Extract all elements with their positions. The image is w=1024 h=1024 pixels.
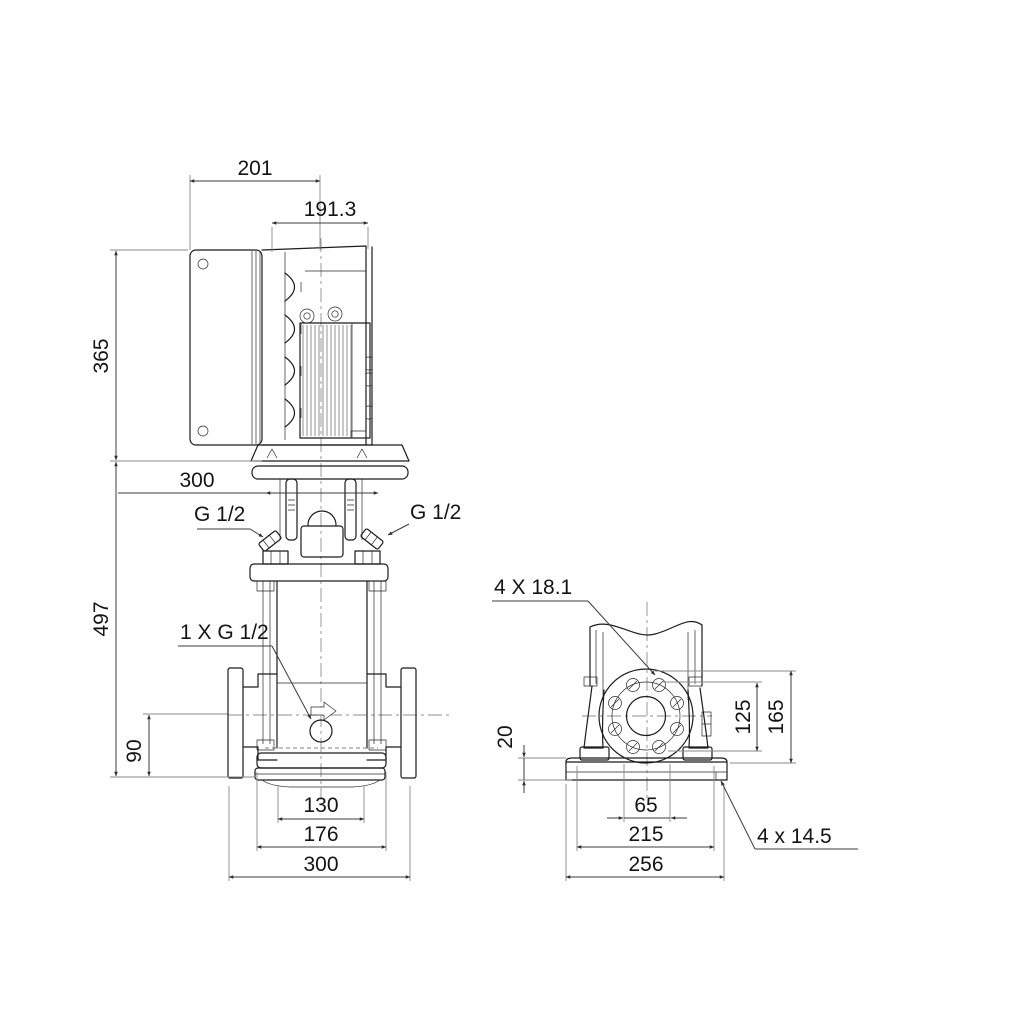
dim-base-slot-span: 65 [634, 794, 657, 817]
dim-foot-ring-width: 176 [303, 823, 338, 846]
pump-base-side [255, 753, 386, 787]
heat-sink [300, 307, 372, 438]
vent-plug-right-fitting [360, 528, 383, 549]
staybolt-nut [257, 740, 274, 750]
coupling-guard [345, 479, 356, 540]
coupling-guard [286, 479, 297, 540]
label-flange-holes: 4 X 18.1 [494, 576, 572, 599]
fan-cover [251, 445, 409, 479]
dimensions-side-view: 201 191.3 365 497 90 300 G 1/2 G 1/2 1 X… [90, 157, 461, 881]
cooling-fin-waves [285, 273, 301, 427]
dim-pump-height: 497 [90, 601, 113, 636]
base-plate-end [566, 758, 727, 780]
end-view [566, 602, 727, 798]
label-vent-plug-right: G 1/2 [410, 501, 461, 524]
dim-flange-top-height: 165 [765, 699, 788, 734]
shaft-dome [308, 511, 336, 525]
motor-control-box [190, 250, 262, 445]
drawing-page: 201 191.3 365 497 90 300 G 1/2 G 1/2 1 X… [0, 0, 1024, 1024]
dim-flange-hole-span: 125 [732, 699, 755, 734]
box-screw-hole [198, 259, 208, 269]
vent-slot [366, 373, 372, 386]
dim-port-flange-width: 130 [303, 794, 338, 817]
screw-icon [300, 309, 314, 323]
vent-slot [366, 357, 372, 370]
dim-head-width: 300 [179, 469, 214, 492]
vent-plug-left-fitting [258, 530, 281, 551]
coupling-block [301, 526, 343, 557]
dim-motor-box-width: 201 [237, 157, 272, 180]
dim-motor-depth: 191.3 [304, 198, 357, 221]
motor-collar [252, 466, 408, 479]
dim-base-width: 300 [303, 853, 338, 876]
hex-nut [263, 551, 288, 564]
staybolt-nut [369, 581, 386, 591]
heat-sink-foot [351, 431, 366, 438]
dim-base-plate-thickness: 20 [494, 725, 517, 748]
staybolt-nut [257, 581, 274, 591]
label-base-holes: 4 x 14.5 [757, 825, 832, 848]
label-vent-plug-left: G 1/2 [194, 503, 245, 526]
screw-icon [328, 307, 342, 321]
box-screw-hole [198, 426, 208, 436]
pump-sleeve [257, 581, 386, 750]
motor-body [262, 246, 372, 445]
hex-nut [355, 551, 380, 564]
vent-slot [366, 406, 372, 419]
pump-dimensional-drawing: 201 191.3 365 497 90 300 G 1/2 G 1/2 1 X… [0, 0, 1024, 1024]
dimensions-end-view: 4 X 18.1 125 165 20 65 215 256 4 x 14.5 [492, 576, 858, 881]
flow-arrow-icon [311, 702, 336, 720]
alignment-marks [267, 449, 367, 458]
coupling-section [250, 479, 388, 581]
dim-port-center-height: 90 [123, 739, 146, 762]
side-view [143, 238, 452, 800]
hinge-lines [252, 251, 260, 444]
label-drain-plug: 1 X G 1/2 [180, 621, 269, 644]
dim-base-hole-spacing: 215 [628, 823, 663, 846]
dim-base-depth: 256 [628, 853, 663, 876]
dim-motor-height: 365 [90, 338, 113, 373]
break-line [590, 621, 702, 634]
pump-head-flange [250, 564, 388, 581]
staybolt-nut [369, 740, 386, 750]
staybolt-nut [689, 677, 702, 686]
